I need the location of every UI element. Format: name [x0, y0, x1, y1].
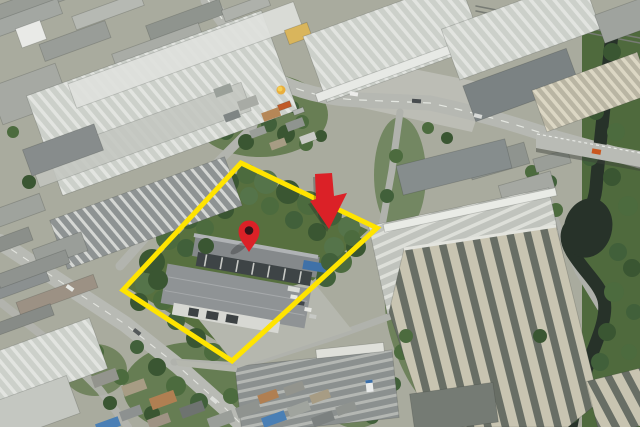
aerial-photo [0, 0, 640, 427]
pin-hole [245, 226, 254, 235]
aerial-scene [0, 0, 640, 427]
